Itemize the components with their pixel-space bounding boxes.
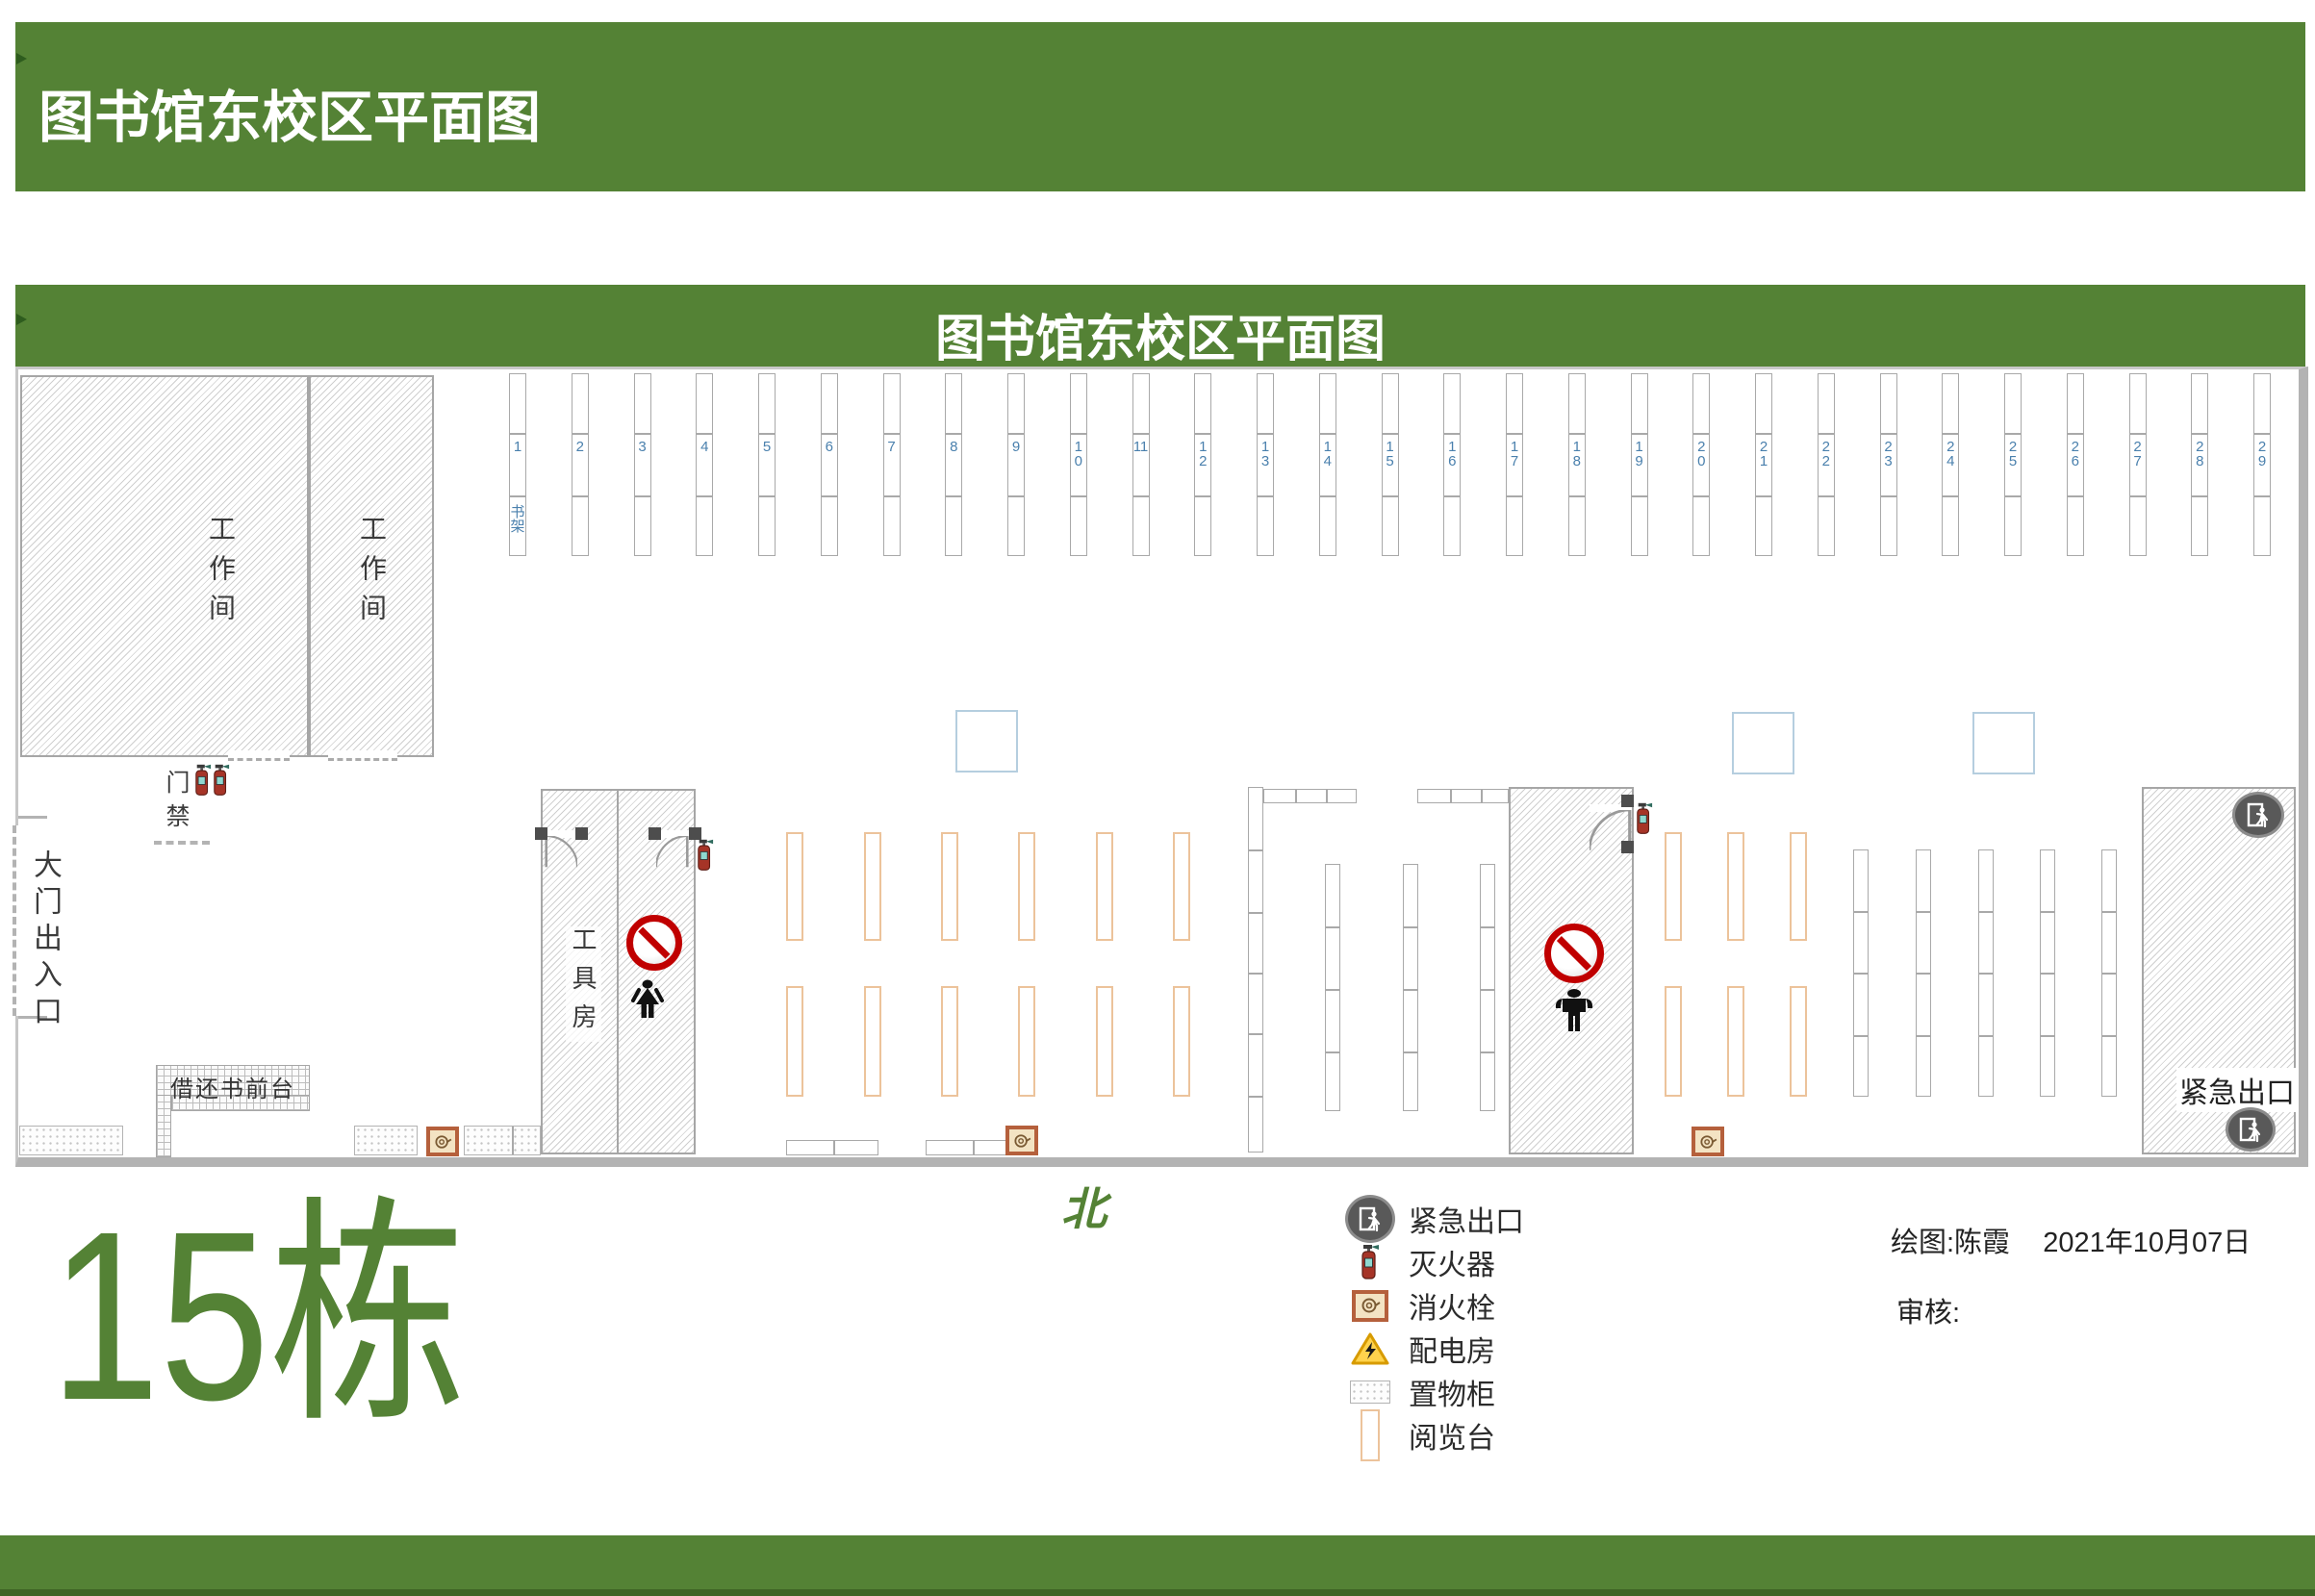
no-entry-sign: [626, 915, 682, 971]
power-room-warning-icon: [1339, 1332, 1401, 1365]
legend-label: 置物柜: [1409, 1371, 1495, 1413]
bookshelf-number: 3: [635, 440, 650, 454]
fire-hydrant-icon: [1011, 1133, 1032, 1149]
bookshelf-unit-label: 书架: [510, 505, 525, 534]
workroom-2-label: 工作间: [352, 515, 391, 633]
tool-room-divider: [617, 789, 619, 1154]
bookshelf-number: 19: [1632, 440, 1647, 469]
bookshelf-number: 1: [510, 440, 525, 454]
plan-title-bar: 图书馆东校区平面图: [15, 285, 2305, 368]
emergency-exit-icon: [2226, 1107, 2276, 1152]
credits-drawn-by: 绘图:陈霞 2021年10月07日: [1891, 1220, 2251, 1260]
storage-locker: [786, 1140, 878, 1155]
bookshelf-number: 18: [1569, 440, 1585, 469]
reading-table: [1173, 986, 1190, 1097]
legend-row: 置物柜: [1339, 1370, 1495, 1414]
legend-row: 配电房: [1339, 1327, 1495, 1371]
bookshelf-strip-4: 4: [696, 373, 713, 556]
fire-extinguisher-icon: [697, 837, 714, 874]
reading-table-icon: [1339, 1409, 1401, 1461]
reading-table: [1173, 832, 1190, 941]
bookshelf-number: 23: [1881, 440, 1896, 469]
shelf-row: [1417, 789, 1509, 803]
north-label: 北: [1061, 1172, 1107, 1238]
bookshelf-strip-23: 23: [1880, 373, 1897, 556]
bookshelf-strip-19: 19: [1631, 373, 1648, 556]
door-post-icon: [575, 827, 588, 840]
reading-table: [1790, 832, 1807, 941]
shelf-column: [1853, 849, 1869, 1097]
workroom-1: [20, 375, 309, 757]
bookshelf-number: 12: [1195, 440, 1210, 469]
bookshelf-strip-1: 1书架: [509, 373, 526, 556]
woman-icon: [631, 979, 664, 1024]
building-label: 15栋: [50, 1185, 467, 1447]
fire-extinguisher-icon: [1339, 1244, 1401, 1280]
door-post-icon: [535, 827, 547, 840]
door-arc: [545, 836, 577, 869]
door-post-icon: [1621, 841, 1634, 853]
workroom-1-label: 工作间: [201, 515, 240, 633]
bookshelf-number: 14: [1320, 440, 1336, 469]
bookshelf-number: 4: [697, 440, 712, 454]
legend-row: 灭火器: [1339, 1240, 1495, 1284]
fire-hydrant-icon: [432, 1134, 453, 1150]
bookshelf-strip-29: 29: [2253, 373, 2271, 556]
access-control-label: 门禁: [159, 770, 193, 837]
bookshelf-number: 2: [572, 440, 588, 454]
legend: 紧急出口 灭火器 消火栓 配电房 置物柜 阅览台: [1339, 1197, 1647, 1476]
bookshelf-strip-16: 16: [1443, 373, 1461, 556]
reading-table: [1727, 832, 1744, 941]
reading-table: [864, 986, 881, 1097]
bookshelf-strip-28: 28: [2191, 373, 2208, 556]
shelf-column: [1403, 864, 1418, 1111]
bookshelf-number: 28: [2192, 440, 2207, 469]
legend-row: 紧急出口: [1339, 1197, 1524, 1241]
reading-table: [1096, 986, 1113, 1097]
blue-square: [955, 710, 1018, 773]
bookshelf-strip-11: 11: [1132, 373, 1150, 556]
bookshelf-strip-14: 14: [1319, 373, 1336, 556]
bookshelf-strip-5: 5: [758, 373, 776, 556]
bookshelf-number: 26: [2068, 440, 2083, 469]
bookshelf-number: 20: [1693, 440, 1709, 469]
shelf-row: [1263, 789, 1357, 803]
bookshelf-strip-8: 8: [945, 373, 962, 556]
blue-square: [1972, 712, 2035, 774]
blue-square: [1732, 712, 1794, 774]
slide-canvas: 图书馆东校区平面图 图书馆东校区平面图 工作间 工作间 门禁 大门出入口 借还书…: [0, 0, 2315, 1596]
fire-hydrant-icon: [1359, 1297, 1382, 1314]
bookshelf-number: 8: [946, 440, 961, 454]
bookshelf-number: 5: [759, 440, 775, 454]
shelf-column: [2101, 849, 2117, 1097]
shelf-column: [1480, 864, 1495, 1111]
fire-extinguisher-icon: [1636, 800, 1653, 837]
bookshelf-strip-18: 18: [1568, 373, 1586, 556]
workroom-door-opening: [228, 750, 290, 761]
bookshelf-number: 7: [884, 440, 900, 454]
credits-review: 审核:: [1896, 1290, 1960, 1330]
reading-table: [786, 832, 803, 941]
bookshelf-number: 9: [1008, 440, 1024, 454]
access-control-gate-dashes: [154, 841, 210, 845]
date-text: 2021年10月07日: [2043, 1228, 2251, 1258]
bookshelf-strip-26: 26: [2067, 373, 2084, 556]
door-arc: [656, 836, 689, 869]
bookshelf-number: 24: [1943, 440, 1958, 469]
bookshelf-number: 6: [822, 440, 837, 454]
emergency-exit-icon: [2236, 1115, 2265, 1144]
header-bar: 图书馆东校区平面图: [15, 22, 2305, 191]
bookshelf-strip-9: 9: [1007, 373, 1025, 556]
legend-label: 紧急出口: [1409, 1198, 1524, 1240]
reading-table: [786, 986, 803, 1097]
reading-table: [1018, 832, 1035, 941]
wall-shelf-column: [1248, 787, 1263, 1153]
bookshelf-strip-12: 12: [1194, 373, 1211, 556]
reading-table: [1096, 832, 1113, 941]
bookshelf-number: 21: [1756, 440, 1771, 469]
bookshelf-number: 13: [1258, 440, 1273, 469]
fire-hydrant-icon: [1692, 1127, 1724, 1156]
reading-table: [864, 832, 881, 941]
service-desk-label: 借还书前台: [156, 1070, 310, 1103]
door-post-icon: [689, 827, 701, 840]
wall-stub: [18, 816, 47, 819]
door-arc: [545, 836, 577, 869]
fire-hydrant-icon: [426, 1127, 459, 1156]
storage-locker-icon: [1339, 1381, 1401, 1404]
fire-extinguisher-icon: [1636, 800, 1653, 837]
shelf-column: [1978, 849, 1994, 1097]
bookshelf-number: 15: [1383, 440, 1398, 469]
tool-room-label: 工具房: [566, 926, 601, 1042]
storage-locker: [354, 1126, 418, 1155]
reading-table: [941, 986, 958, 1097]
man-icon: [1553, 989, 1595, 1033]
shelf-column: [2040, 849, 2055, 1097]
bookshelf-number: 29: [2254, 440, 2270, 469]
page-title: 图书馆东校区平面图: [38, 72, 541, 153]
fire-extinguisher-icon: [213, 762, 230, 798]
bookshelf-strip-24: 24: [1942, 373, 1959, 556]
bookshelf-strip-21: 21: [1755, 373, 1772, 556]
woman-icon: [631, 979, 664, 1024]
bookshelf-number: 27: [2130, 440, 2146, 469]
fire-hydrant-icon: [1339, 1290, 1401, 1322]
bookshelf-strip-2: 2: [572, 373, 589, 556]
reading-table: [1790, 986, 1807, 1097]
shelf-column: [1916, 849, 1931, 1097]
drawn-by-text: 绘图:陈霞: [1891, 1228, 2010, 1258]
storage-locker: [926, 1140, 1018, 1155]
emergency-exit-icon: [2232, 792, 2284, 838]
bookshelf-strip-17: 17: [1506, 373, 1523, 556]
bookshelf-number: 16: [1444, 440, 1460, 469]
bookshelf-strip-22: 22: [1818, 373, 1835, 556]
power-room-warning-icon: [1351, 1332, 1389, 1365]
bookshelf-strip-3: 3: [634, 373, 651, 556]
bookshelf-strip-15: 15: [1382, 373, 1399, 556]
reading-table: [1665, 986, 1682, 1097]
reading-table: [1727, 986, 1744, 1097]
door-post-icon: [649, 827, 661, 840]
door-post-icon: [1621, 795, 1634, 807]
bookshelf-number: 25: [2005, 440, 2021, 469]
emergency-exit-icon: [1356, 1204, 1385, 1233]
main-entrance-label: 大门出入口: [23, 849, 65, 1032]
reading-table: [1665, 832, 1682, 941]
bookshelf-number: 22: [1819, 440, 1834, 469]
fire-extinguisher-icon: [213, 762, 230, 798]
workroom-door-opening: [328, 750, 397, 761]
bookshelf-strip-10: 10: [1070, 373, 1087, 556]
reading-table: [1018, 986, 1035, 1097]
bookshelf-strip-25: 25: [2004, 373, 2022, 556]
footer-bar: [0, 1535, 2315, 1596]
no-entry-sign: [1544, 924, 1604, 983]
fire-hydrant-icon: [1005, 1126, 1038, 1155]
bookshelf-number: 10: [1071, 440, 1086, 469]
bookshelf-number: 17: [1507, 440, 1522, 469]
fire-extinguisher-icon: [1361, 1244, 1380, 1280]
door-arc: [656, 836, 689, 869]
emergency-exit-icon: [1339, 1195, 1401, 1243]
man-icon: [1553, 989, 1595, 1033]
legend-label: 灭火器: [1409, 1241, 1495, 1283]
header-corner-icon: [16, 53, 27, 64]
fire-extinguisher-icon: [194, 762, 212, 798]
legend-label: 消火栓: [1409, 1284, 1495, 1327]
bookshelf-strip-7: 7: [883, 373, 901, 556]
legend-label: 配电房: [1409, 1328, 1495, 1370]
reading-table: [941, 832, 958, 941]
storage-locker: [464, 1126, 541, 1155]
legend-row: 消火栓: [1339, 1283, 1495, 1328]
fire-hydrant-icon: [1697, 1134, 1718, 1150]
bookshelf-number: 11: [1133, 440, 1149, 454]
storage-locker: [19, 1126, 123, 1155]
emergency-exit-icon: [2244, 800, 2273, 829]
emergency-exit-label: 紧急出口: [2176, 1068, 2298, 1112]
legend-row: 阅览台: [1339, 1413, 1495, 1457]
bookshelf-strip-13: 13: [1257, 373, 1274, 556]
bookshelf-strip-27: 27: [2129, 373, 2147, 556]
shelf-column: [1325, 864, 1340, 1111]
bookshelf-strip-6: 6: [821, 373, 838, 556]
legend-label: 阅览台: [1409, 1414, 1495, 1457]
bookshelf-strip-20: 20: [1692, 373, 1710, 556]
fire-extinguisher-icon: [194, 762, 212, 798]
plan-title: 图书馆东校区平面图: [15, 298, 2305, 370]
fire-extinguisher-icon: [697, 837, 714, 874]
service-desk: [156, 1095, 171, 1157]
